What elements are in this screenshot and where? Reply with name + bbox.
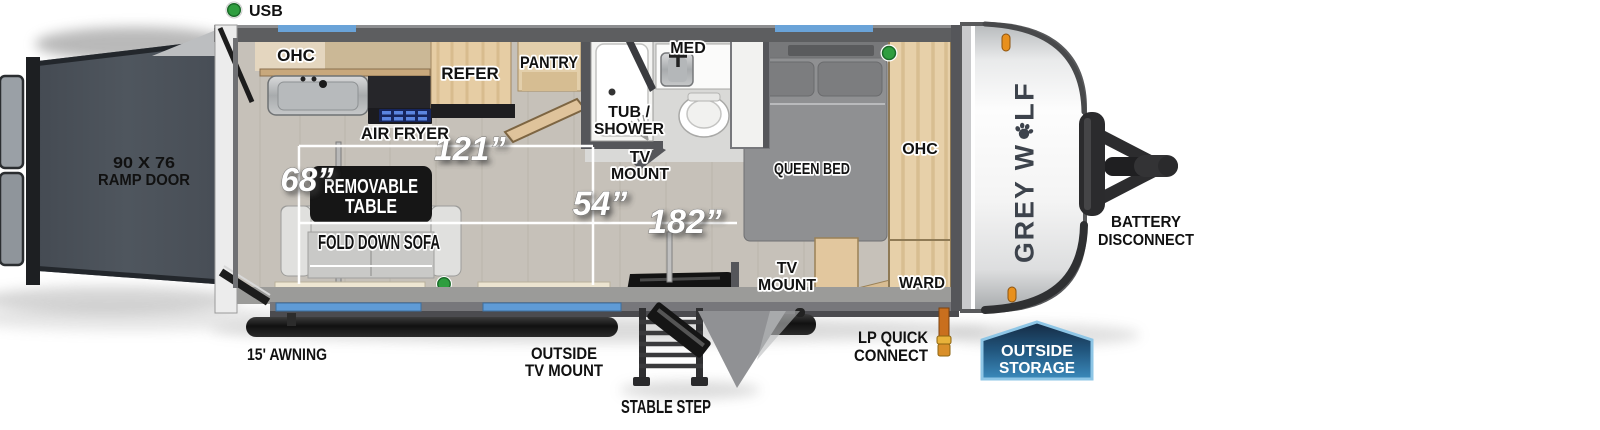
svg-text:68”: 68” (280, 161, 334, 198)
svg-text:TUB /: TUB / (608, 104, 650, 121)
svg-text:MOUNT: MOUNT (611, 166, 669, 183)
svg-text:BATTERY: BATTERY (1111, 214, 1181, 231)
svg-text:CONNECT: CONNECT (854, 346, 929, 365)
svg-text:MED: MED (670, 40, 706, 57)
svg-text:RAMP DOOR: RAMP DOOR (98, 172, 190, 189)
svg-text:LF: LF (1010, 81, 1040, 121)
svg-text:REMOVABLE: REMOVABLE (324, 176, 418, 198)
svg-text:SHOWER: SHOWER (594, 121, 664, 138)
svg-text:TABLE: TABLE (345, 196, 397, 218)
svg-text:FOLD DOWN SOFA: FOLD DOWN SOFA (318, 232, 440, 254)
svg-text:MOUNT: MOUNT (758, 277, 816, 294)
svg-text:TV: TV (630, 149, 651, 166)
svg-text:54”: 54” (573, 185, 628, 223)
svg-text:STORAGE: STORAGE (999, 360, 1075, 377)
svg-text:OHC: OHC (277, 46, 315, 65)
svg-text:QUEEN BED: QUEEN BED (774, 161, 850, 178)
svg-text:182”: 182” (648, 203, 722, 241)
svg-text:TV: TV (777, 260, 798, 277)
svg-text:OHC: OHC (902, 141, 938, 158)
svg-text:PANTRY: PANTRY (520, 53, 579, 72)
svg-text:AIR FRYER: AIR FRYER (361, 124, 449, 143)
svg-text:GREY W: GREY W (1010, 143, 1040, 263)
svg-text:USB: USB (249, 3, 283, 20)
svg-text:DISCONNECT: DISCONNECT (1098, 232, 1194, 249)
svg-text:STABLE STEP: STABLE STEP (621, 397, 711, 417)
svg-text:15' AWNING: 15' AWNING (247, 345, 327, 364)
svg-text:LP QUICK: LP QUICK (858, 328, 929, 347)
svg-text:OUTSIDE: OUTSIDE (1001, 343, 1073, 360)
svg-text:90 X 76: 90 X 76 (113, 155, 175, 172)
svg-text:REFER: REFER (441, 64, 499, 83)
svg-text:TV MOUNT: TV MOUNT (525, 361, 604, 380)
svg-text:WARD: WARD (899, 275, 945, 292)
